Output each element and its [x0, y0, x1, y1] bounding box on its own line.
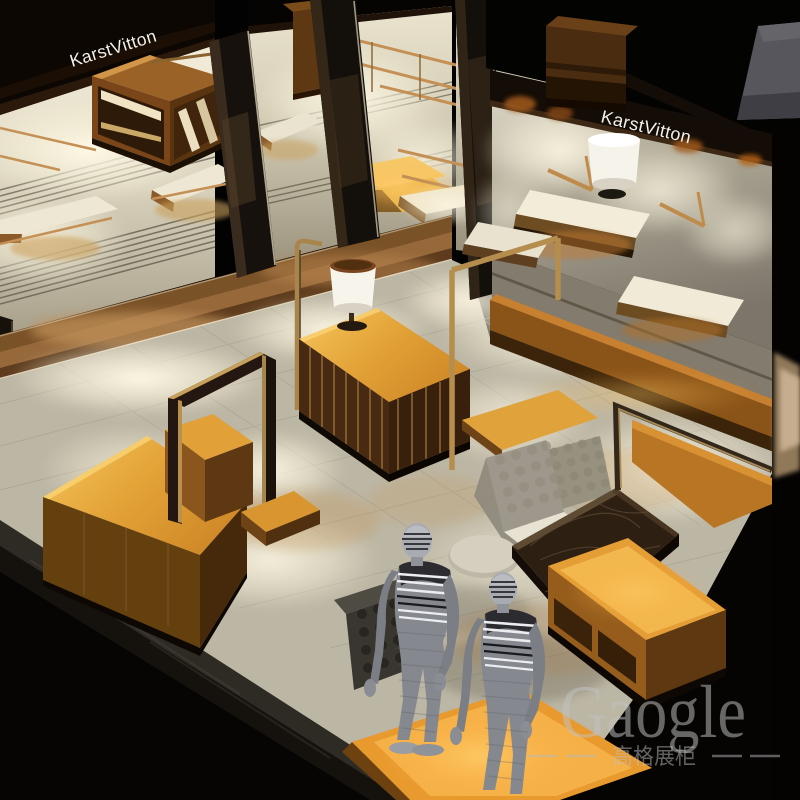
svg-text:高格展柜: 高格展柜	[612, 744, 696, 769]
svg-text:Gaogle: Gaogle	[560, 671, 746, 754]
